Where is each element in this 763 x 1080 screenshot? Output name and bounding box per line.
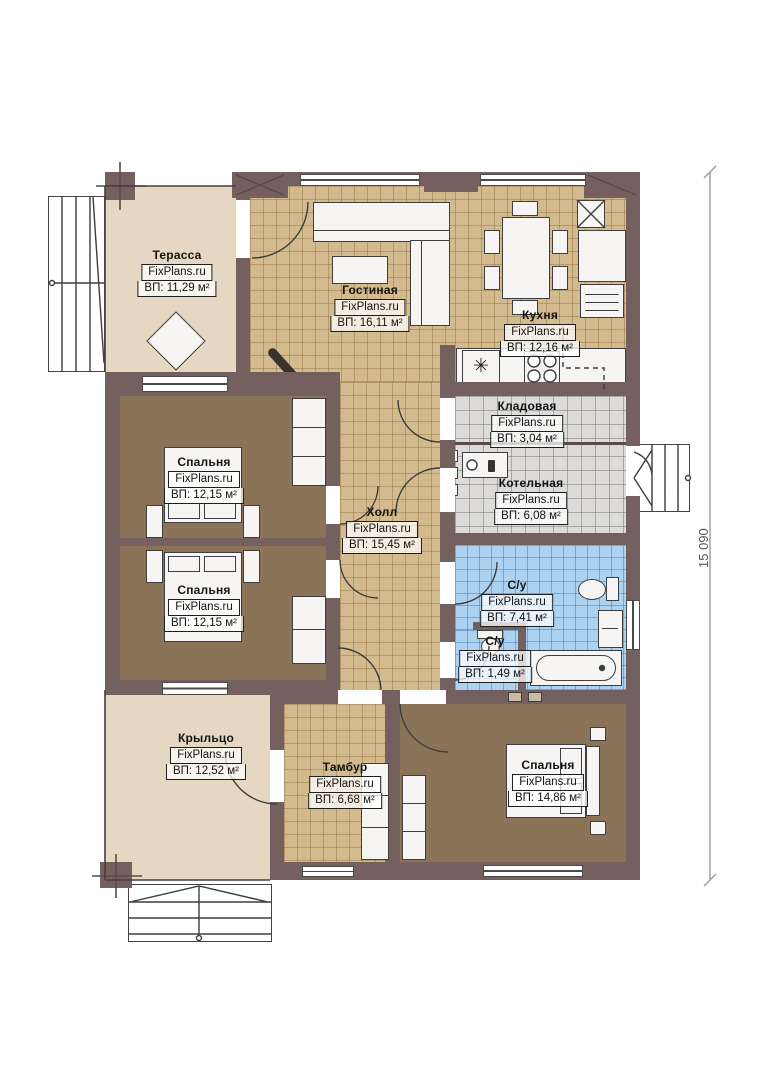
wall-bedroom-divider bbox=[120, 538, 326, 546]
chair bbox=[512, 201, 538, 216]
room-label-wc: С/у FixPlans.ru ВП: 1,49 м² bbox=[458, 634, 532, 683]
exterior-side-steps bbox=[632, 444, 690, 512]
door-bedroom3 bbox=[400, 690, 446, 704]
room-name: С/у bbox=[507, 578, 526, 592]
wall-boiler-bath bbox=[440, 533, 626, 545]
chair bbox=[552, 266, 568, 290]
room-area: ВП: 12,52 м² bbox=[166, 764, 246, 780]
pillow bbox=[204, 556, 236, 572]
porch-column bbox=[100, 862, 132, 888]
vent-box bbox=[508, 692, 522, 702]
room-name: Кухня bbox=[522, 308, 558, 322]
sofa-horizontal bbox=[313, 202, 450, 242]
washbasin-cabinet bbox=[598, 610, 623, 648]
room-area: ВП: 3,04 м² bbox=[490, 432, 564, 448]
room-area: ВП: 14,86 м² bbox=[508, 791, 588, 807]
chair bbox=[552, 230, 568, 254]
pillow bbox=[204, 503, 236, 519]
wall-bedrooms-right bbox=[326, 396, 340, 695]
room-name: Крыльцо bbox=[178, 731, 234, 745]
wall-kitchen-pantry bbox=[440, 382, 626, 396]
door-bedroom1 bbox=[326, 486, 340, 524]
vent-box bbox=[528, 692, 542, 702]
room-name: Спальня bbox=[521, 758, 574, 772]
pillow bbox=[168, 556, 200, 572]
room-brand: FixPlans.ru bbox=[309, 776, 381, 793]
room-label-vestibule: Тамбур FixPlans.ru ВП: 6,68 м² bbox=[308, 760, 382, 809]
terrace-steps bbox=[48, 196, 105, 372]
room-area: ВП: 6,08 м² bbox=[494, 509, 568, 525]
door-hall-kitchen bbox=[440, 398, 455, 440]
room-name: Спальня bbox=[177, 455, 230, 469]
room-brand: FixPlans.ru bbox=[491, 415, 563, 432]
nightstand bbox=[243, 550, 260, 583]
dining-table bbox=[502, 217, 550, 299]
sink-icon: ✳ bbox=[473, 357, 489, 376]
boiler-bench bbox=[462, 452, 508, 478]
vent-shaft bbox=[577, 200, 605, 228]
room-label-pantry: Кладовая FixPlans.ru ВП: 3,04 м² bbox=[490, 399, 564, 448]
window-bedroom2 bbox=[162, 682, 228, 695]
bed-headboard bbox=[586, 746, 600, 816]
wall-left bbox=[105, 396, 120, 695]
room-area: ВП: 16,11 м² bbox=[330, 316, 409, 332]
window-living-top bbox=[300, 174, 420, 186]
nightstand bbox=[590, 821, 606, 835]
floor-plan: ✳ bbox=[0, 0, 763, 1080]
room-area: ВП: 1,49 м² bbox=[458, 667, 532, 683]
wardrobe bbox=[292, 398, 326, 486]
room-brand: FixPlans.ru bbox=[459, 650, 531, 667]
nightstand bbox=[590, 727, 606, 741]
room-label-kitchen: Кухня FixPlans.ru ВП: 12,16 м² bbox=[500, 308, 580, 357]
room-brand: FixPlans.ru bbox=[481, 594, 553, 611]
porch-steps bbox=[128, 884, 272, 942]
toilet-bowl bbox=[578, 579, 606, 600]
room-brand: FixPlans.ru bbox=[495, 492, 567, 509]
door-terrace-living bbox=[236, 200, 250, 258]
room-name: Спальня bbox=[177, 583, 230, 597]
room-label-boiler: Котельная FixPlans.ru ВП: 6,08 м² bbox=[494, 476, 568, 525]
room-brand: FixPlans.ru bbox=[512, 774, 584, 791]
door-boiler-exterior bbox=[626, 446, 640, 496]
boiler-valve bbox=[488, 460, 495, 472]
chair bbox=[484, 266, 500, 290]
door-porch-vestibule bbox=[270, 750, 284, 802]
wardrobe bbox=[292, 596, 326, 664]
room-area: ВП: 15,45 м² bbox=[342, 538, 422, 554]
room-label-bedroom3: Спальня FixPlans.ru ВП: 14,86 м² bbox=[508, 758, 588, 807]
room-name: Холл bbox=[367, 505, 398, 519]
room-label-bathroom: С/у FixPlans.ru ВП: 7,41 м² bbox=[480, 578, 554, 627]
room-area: ВП: 12,16 м² bbox=[500, 341, 580, 357]
room-brand: FixPlans.ru bbox=[334, 299, 406, 316]
kitchen-appliance bbox=[580, 284, 624, 318]
room-name: Терасса bbox=[153, 248, 202, 262]
room-brand: FixPlans.ru bbox=[168, 471, 240, 488]
room-brand: FixPlans.ru bbox=[504, 324, 576, 341]
room-label-bedroom2: Спальня FixPlans.ru ВП: 12,15 м² bbox=[164, 583, 244, 632]
dimension-height-label: 15 090 bbox=[696, 528, 711, 568]
door-vestibule-hall bbox=[338, 690, 382, 704]
nightstand bbox=[146, 550, 163, 583]
room-brand: FixPlans.ru bbox=[170, 747, 242, 764]
room-name: Кладовая bbox=[497, 399, 556, 413]
window-kitchen-top bbox=[480, 174, 586, 186]
window-bathroom bbox=[626, 600, 640, 650]
window-bedroom1 bbox=[142, 376, 228, 392]
door-bedroom2 bbox=[326, 560, 340, 598]
window-vestibule bbox=[302, 866, 354, 877]
door-hall-bathroom bbox=[440, 562, 455, 604]
door-hall-boiler bbox=[440, 468, 455, 512]
toilet-tank bbox=[606, 577, 619, 601]
wall-right bbox=[626, 172, 640, 880]
porch-floor bbox=[105, 690, 270, 880]
room-brand: FixPlans.ru bbox=[346, 521, 418, 538]
room-area: ВП: 7,41 м² bbox=[480, 611, 554, 627]
wall-top-pier-mid bbox=[424, 172, 478, 192]
room-label-living: Гостиная FixPlans.ru ВП: 16,11 м² bbox=[330, 283, 409, 332]
room-area: ВП: 12,15 м² bbox=[164, 616, 244, 632]
sofa-vertical bbox=[410, 240, 450, 326]
room-name: С/у bbox=[485, 634, 504, 648]
room-label-bedroom1: Спальня FixPlans.ru ВП: 12,15 м² bbox=[164, 455, 244, 504]
closet bbox=[402, 775, 426, 860]
coffee-table bbox=[332, 256, 388, 284]
bathtub-inner bbox=[536, 655, 616, 681]
window-bedroom3 bbox=[483, 865, 583, 877]
terrace-column bbox=[105, 172, 135, 200]
nightstand bbox=[146, 505, 163, 538]
room-area: ВП: 6,68 м² bbox=[308, 793, 382, 809]
chair bbox=[484, 230, 500, 254]
room-label-hall: Холл FixPlans.ru ВП: 15,45 м² bbox=[342, 505, 422, 554]
nightstand bbox=[243, 505, 260, 538]
room-brand: FixPlans.ru bbox=[141, 264, 213, 281]
kitchen-counter-right bbox=[578, 230, 626, 282]
room-name: Гостиная bbox=[342, 283, 398, 297]
room-brand: FixPlans.ru bbox=[168, 599, 240, 616]
pillow bbox=[168, 503, 200, 519]
door-hall-wc bbox=[440, 642, 455, 678]
room-area: ВП: 11,29 м² bbox=[137, 281, 216, 297]
room-label-terrace: Терасса FixPlans.ru ВП: 11,29 м² bbox=[137, 248, 216, 297]
room-label-porch: Крыльцо FixPlans.ru ВП: 12,52 м² bbox=[166, 731, 246, 780]
room-name: Котельная bbox=[499, 476, 564, 490]
room-area: ВП: 12,15 м² bbox=[164, 488, 244, 504]
room-name: Тамбур bbox=[323, 760, 368, 774]
